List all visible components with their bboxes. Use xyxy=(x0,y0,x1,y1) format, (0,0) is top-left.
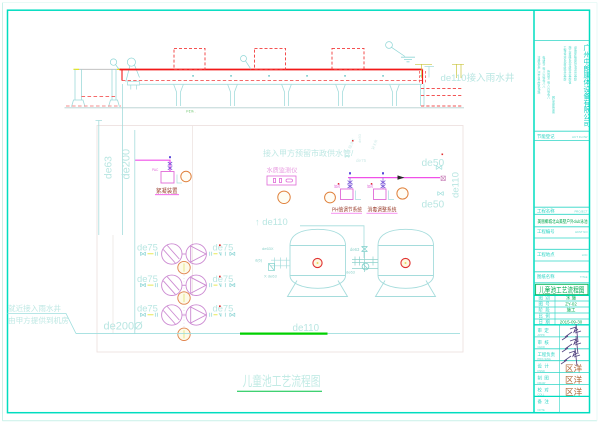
svg-text:儿童池工艺流程图: 儿童池工艺流程图 xyxy=(539,284,585,294)
svg-text:de200Ø: de200Ø xyxy=(104,321,144,333)
svg-text:de63: de63 xyxy=(350,247,360,252)
svg-text:比 例: 比 例 xyxy=(539,313,551,320)
svg-text:de75: de75 xyxy=(213,242,234,253)
svg-text:NOTE: NOTE xyxy=(538,408,545,412)
svg-text:工程编号: 工程编号 xyxy=(537,228,555,235)
svg-text:d(6): d(6) xyxy=(255,258,263,263)
svg-text:de110接入雨水井: de110接入雨水井 xyxy=(441,72,515,84)
svg-text:X de63: X de63 xyxy=(264,274,277,279)
svg-text:网址康体设备: 网址康体设备 xyxy=(551,96,555,114)
svg-text:絮凝装置: 絮凝装置 xyxy=(156,187,178,195)
svg-text:注册地址广州市白云区机场路: 注册地址广州市白云区机场路 xyxy=(537,55,541,95)
svg-text:区洋: 区洋 xyxy=(565,362,583,373)
svg-text:加药: 加药 xyxy=(334,184,340,189)
svg-text:de75: de75 xyxy=(137,303,158,314)
svg-text:de63: de63 xyxy=(104,156,115,179)
svg-text:美丽椰城北山美墅户外club泳池: 美丽椰城北山美墅户外club泳池 xyxy=(538,218,588,225)
svg-text:由甲方提供到机房: 由甲方提供到机房 xyxy=(8,315,69,325)
svg-text:校 对: 校 对 xyxy=(538,387,550,394)
svg-text:DRAW: DRAW xyxy=(538,381,546,385)
svg-text:de50: de50 xyxy=(422,200,445,211)
svg-text:PH值调节系统: PH值调节系统 xyxy=(332,205,362,213)
svg-text:APPD: APPD xyxy=(538,333,545,337)
svg-text:CHKD: CHKD xyxy=(538,345,545,349)
svg-text:阶 段: 阶 段 xyxy=(539,307,551,314)
svg-text:de75: de75 xyxy=(213,303,234,314)
svg-text:区洋: 区洋 xyxy=(565,386,583,397)
svg-text:图纸名称: 图纸名称 xyxy=(537,273,555,280)
svg-text:审 定: 审 定 xyxy=(538,327,550,334)
svg-text:儿童池工艺流程图: 儿童池工艺流程图 xyxy=(243,373,321,389)
svg-text:de75: de75 xyxy=(356,158,367,163)
svg-text:设 计: 设 计 xyxy=(538,363,550,370)
svg-text:节能登记: 节能登记 xyxy=(537,133,555,140)
svg-text:DSND: DSND xyxy=(538,369,545,373)
svg-text:↑ de110: ↑ de110 xyxy=(255,216,288,227)
svg-text:de75: de75 xyxy=(137,273,158,284)
svg-text:制 图: 制 图 xyxy=(538,375,550,382)
svg-text:图 别: 图 别 xyxy=(539,295,550,302)
svg-text:ZY-02: ZY-02 xyxy=(565,302,577,307)
svg-text:TITLE: TITLE xyxy=(580,275,588,279)
svg-text:de50: de50 xyxy=(357,133,362,143)
svg-text:de200: de200 xyxy=(121,149,133,180)
svg-text:de63: de63 xyxy=(346,270,356,275)
svg-text:消毒调整系统: 消毒调整系统 xyxy=(368,205,397,213)
svg-text:就近接入雨水井: 就近接入雨水井 xyxy=(8,303,62,313)
svg-text:de63X: de63X xyxy=(262,246,274,251)
svg-text:de75: de75 xyxy=(137,242,158,253)
svg-text:水质监测仪: 水质监测仪 xyxy=(267,167,298,175)
svg-text:ACT FLOW: ACT FLOW xyxy=(572,135,588,139)
svg-text:LOC: LOC xyxy=(582,253,588,257)
svg-text:de110: de110 xyxy=(293,323,320,334)
svg-text:de50: de50 xyxy=(422,158,445,169)
svg-text:区洋: 区洋 xyxy=(565,374,583,385)
svg-text:工程地点: 工程地点 xyxy=(537,251,555,258)
svg-text:备 注: 备 注 xyxy=(538,398,550,405)
svg-text:PAC: PAC xyxy=(152,168,159,172)
svg-text:加药: 加药 xyxy=(367,184,373,189)
svg-text:施工: 施工 xyxy=(567,307,576,314)
svg-text:de75: de75 xyxy=(213,273,234,284)
svg-text:工程名称: 工程名称 xyxy=(537,208,555,215)
svg-text:电话零二零八六零零八八: 电话零二零八六零零八八 xyxy=(542,55,546,88)
svg-text:接入甲方预留市政供水管/: 接入甲方预留市政供水管/ xyxy=(263,148,354,158)
svg-text:HKST NO: HKST NO xyxy=(575,230,588,234)
svg-text:设备安装资质证书壹贰叁肆: 设备安装资质证书壹贰叁肆 xyxy=(574,45,578,82)
svg-text:传真零二零八六零零八: 传真零二零八六零零八 xyxy=(547,69,551,99)
svg-text:COLL: COLL xyxy=(538,393,545,397)
svg-text:PROJ ENG: PROJ ENG xyxy=(538,357,551,361)
svg-text:工程负责: 工程负责 xyxy=(538,351,556,358)
svg-text:审 核: 审 核 xyxy=(538,339,550,346)
svg-text:i=1% .: i=1% . xyxy=(186,110,196,114)
svg-text:水 施: 水 施 xyxy=(566,295,577,302)
svg-text:施工资质证书壹级壹贰叁肆伍: 施工资质证书壹级壹贰叁肆伍 xyxy=(568,45,572,85)
svg-text:PROJECT: PROJECT xyxy=(574,210,587,214)
svg-text:de110: de110 xyxy=(451,172,462,198)
svg-text:2015-09-30: 2015-09-30 xyxy=(560,320,583,325)
svg-text:工程设计证书甲级壹贰叁肆: 工程设计证书甲级壹贰叁肆 xyxy=(563,46,567,82)
